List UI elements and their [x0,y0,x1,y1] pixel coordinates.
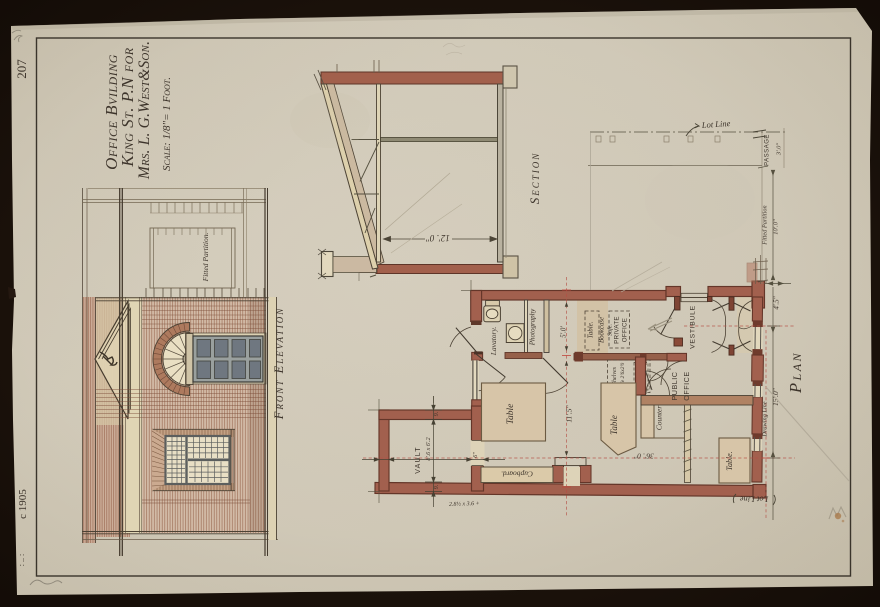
svg-text:VESTIBULE: VESTIBULE [690,305,697,349]
svg-text:6": 6" [473,452,479,458]
svg-text:Counter: Counter [655,406,664,431]
svg-text:Safe.: Safe. [607,324,614,336]
svg-text:36'. 0": 36'. 0" [633,452,655,461]
svg-text:Drawing Line: Drawing Line [762,401,769,437]
svg-text:Plan: Plan [786,351,805,394]
svg-text:9.: 9. [434,412,440,417]
svg-text:5'.0': 5'.0' [560,326,568,338]
svg-text:Mrs. L. G.West&Son.: Mrs. L. G.West&Son. [136,41,153,180]
svg-text:Scale: 1/8"= 1 Foot.: Scale: 1/8"= 1 Foot. [161,77,173,171]
svg-text:Table.: Table. [587,321,595,338]
svg-text:11'.5": 11'.5" [565,404,574,422]
svg-text:12'. 0": 12'. 0" [426,233,450,243]
svg-text:3'.0": 3'.0" [776,143,783,157]
svg-text:8'.6 x 6'.2: 8'.6 x 6'.2 [426,437,432,460]
svg-text:Section: Section [527,152,542,205]
svg-text:Table.: Table. [725,451,734,471]
svg-text:9.: 9. [434,485,440,490]
svg-text:PASSAGE: PASSAGE [765,134,771,166]
svg-text:Lot Line: Lot Line [700,118,730,130]
svg-text:OFFICE: OFFICE [622,318,629,343]
svg-text:Cupboard.: Cupboard. [501,470,533,479]
svg-text:Table: Table [609,415,619,435]
svg-text:Shelves: Shelves [612,366,618,385]
svg-text:207: 207 [14,59,29,79]
svg-text:Lot Line: Lot Line [739,495,769,505]
svg-text:Fitted Partition.: Fitted Partition. [201,233,210,283]
svg-text:Table: Table [506,404,516,425]
svg-text:15'.0": 15'.0" [771,387,780,406]
svg-text:OFFICE: OFFICE [682,371,691,400]
svg-text:10'.0": 10'.0" [773,219,780,235]
svg-text:VAULT: VAULT [415,446,422,474]
svg-text:King St. P.N for: King St. P.N for [118,47,137,167]
svg-text:PRIVATE: PRIVATE [614,316,621,344]
svg-text:PUBLIC: PUBLIC [670,372,679,401]
svg-text:: .. :: : .. : [17,554,26,566]
svg-text:Fitted Partition: Fitted Partition [762,205,769,245]
svg-text:4'.5": 4'.5" [773,296,781,309]
svg-text:Front Elevation: Front Elevation [272,307,286,420]
svg-text:Photography: Photography [529,308,537,346]
svg-text:Bookcase: Bookcase [599,317,606,343]
svg-text:Lavatory.: Lavatory. [489,327,498,357]
svg-text:2.8½ x 3.6 +: 2.8½ x 3.6 + [449,500,480,508]
svg-text:c 1905: c 1905 [17,489,29,519]
